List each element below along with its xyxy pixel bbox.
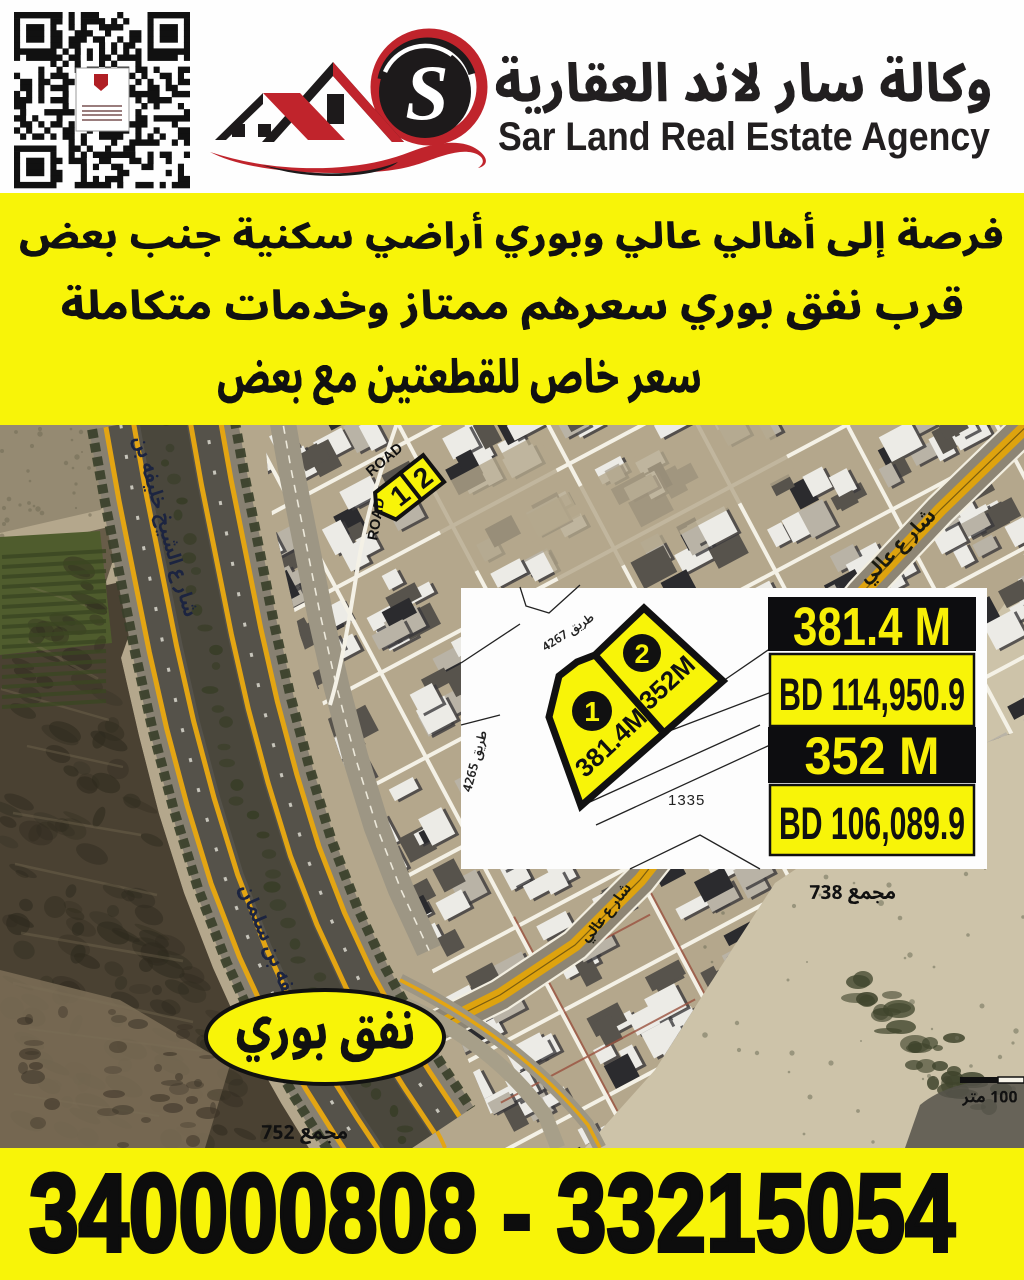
- svg-text:352 M: 352 M: [805, 727, 940, 786]
- svg-text:1: 1: [584, 696, 600, 727]
- svg-text:381.4 M: 381.4 M: [793, 597, 951, 657]
- svg-text:340000808 - 33215054: 340000808 - 33215054: [29, 1152, 955, 1275]
- svg-text:BD 114,950.9: BD 114,950.9: [779, 669, 965, 720]
- svg-text:1335: 1335: [668, 792, 705, 809]
- svg-text:2: 2: [634, 639, 649, 669]
- svg-text:S: S: [405, 49, 448, 136]
- svg-text:Sar Land Real Estate Agency: Sar Land Real Estate Agency: [498, 115, 991, 159]
- svg-text:BD 106,089.9: BD 106,089.9: [779, 798, 965, 849]
